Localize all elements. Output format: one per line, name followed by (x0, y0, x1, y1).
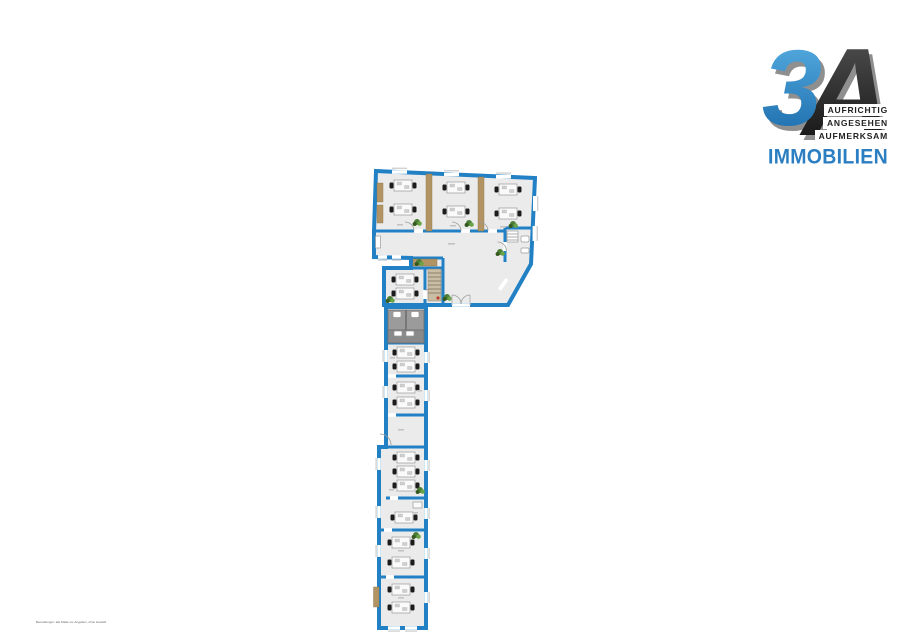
stair-nook (428, 269, 441, 301)
fine-print: Bemaßungen: alle Maße ca.-Angaben, ohne … (36, 621, 106, 624)
flyer-page: A 3 A 3 AUFRICHTIG ANGESEHEN AUFMERKSAM … (0, 0, 900, 636)
tagline-aufmerksam: AUFMERKSAM (815, 130, 888, 142)
logo-number-3: 3 (762, 27, 822, 148)
partition-1 (426, 174, 432, 231)
washroom (388, 330, 424, 343)
toilet (521, 236, 529, 242)
brand-immobilien: IMMOBILIEN (762, 145, 894, 170)
company-logo: A 3 A 3 AUFRICHTIG ANGESEHEN AUFMERKSAM … (762, 8, 894, 172)
toilet (393, 312, 401, 318)
toilet (411, 312, 419, 318)
wc-stalls (388, 310, 424, 330)
side-table (413, 502, 422, 508)
tagline-angesehen: ANGESEHEN (823, 117, 888, 129)
fire-extinguisher (437, 297, 440, 300)
sink (394, 331, 402, 336)
sink (521, 248, 529, 253)
sink (406, 331, 414, 336)
exterior-stair (374, 587, 380, 607)
shaft-hatch (507, 231, 518, 242)
radiator (376, 236, 381, 248)
tagline-aufrichtig: AUFRICHTIG (824, 104, 888, 116)
